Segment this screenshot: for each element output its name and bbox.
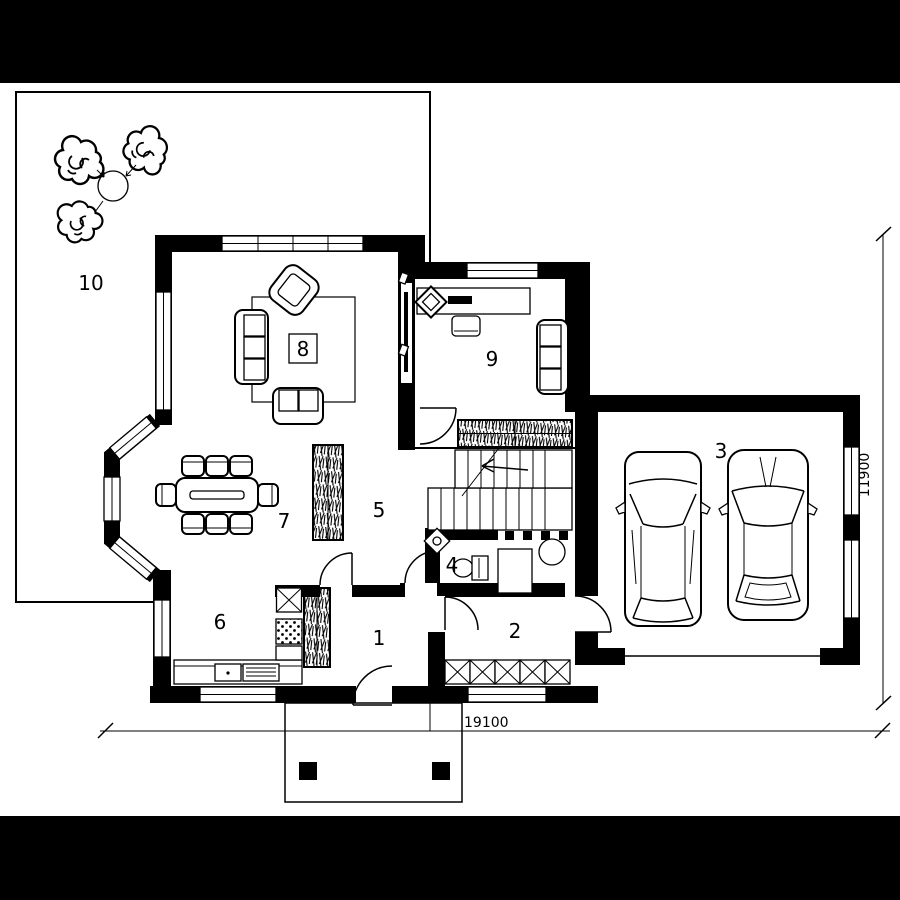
sofa-3seat-icon <box>537 320 568 394</box>
sofa-3seat-icon <box>235 310 268 384</box>
boiler-icon <box>539 539 565 565</box>
room-label-8: 8 <box>297 337 310 361</box>
dimension-width-label: 19100 <box>464 715 509 731</box>
wardrobe-icon <box>313 445 343 540</box>
room-label-5: 5 <box>373 498 386 522</box>
window <box>154 600 170 657</box>
tv-icon <box>404 292 408 372</box>
dining-chair-icon <box>230 456 252 476</box>
shower-tray <box>498 549 532 593</box>
dimension-height-label: 11900 <box>857 453 873 498</box>
porch <box>285 703 462 802</box>
window <box>222 236 363 251</box>
window <box>200 687 276 702</box>
floor-plan-drawing: 19100 11900 10 8 9 7 5 4 6 1 2 3 <box>0 0 900 900</box>
car-icon <box>719 450 817 620</box>
room-label-9: 9 <box>486 347 499 371</box>
room-label-3: 3 <box>715 439 728 463</box>
room-label-1: 1 <box>373 626 386 650</box>
desk-chair-icon <box>452 316 480 336</box>
room-label-2: 2 <box>509 619 522 643</box>
window <box>467 263 538 278</box>
dining-chair-icon <box>182 514 204 534</box>
window <box>468 687 546 702</box>
dimension-line-bottom: 19100 <box>98 715 890 738</box>
wardrobe-icon <box>304 588 330 667</box>
car-icon <box>616 452 710 626</box>
bottom-matte <box>0 816 900 900</box>
window <box>156 292 171 410</box>
porch-column <box>432 762 450 780</box>
fridge-icon <box>277 588 302 612</box>
sofa-2seat-icon <box>273 388 323 424</box>
kitchen-cabinet <box>276 646 302 660</box>
dining-chair-icon <box>156 484 176 506</box>
room-label-10: 10 <box>78 271 103 295</box>
dining-chair-icon <box>206 456 228 476</box>
dining-chair-icon <box>258 484 278 506</box>
dining-chair-icon <box>230 514 252 534</box>
room-label-6: 6 <box>214 610 227 634</box>
top-matte <box>0 0 900 83</box>
dimension-line-right: 11900 <box>857 227 891 710</box>
floor-plan-page: 19100 11900 10 8 9 7 5 4 6 1 2 3 <box>0 0 900 900</box>
room-label-4: 4 <box>446 553 459 577</box>
window <box>104 477 120 521</box>
room-label-7: 7 <box>278 509 291 533</box>
drainer-icon <box>243 664 279 681</box>
dining-chair-icon <box>182 456 204 476</box>
computer-icon <box>448 296 472 304</box>
wardrobe-icon <box>458 420 572 447</box>
stove-icon <box>276 619 302 644</box>
kitchen-sink-icon <box>215 664 241 681</box>
window <box>844 540 859 618</box>
dining-chair-icon <box>206 514 228 534</box>
porch-column <box>299 762 317 780</box>
storage-boxes <box>445 660 570 684</box>
